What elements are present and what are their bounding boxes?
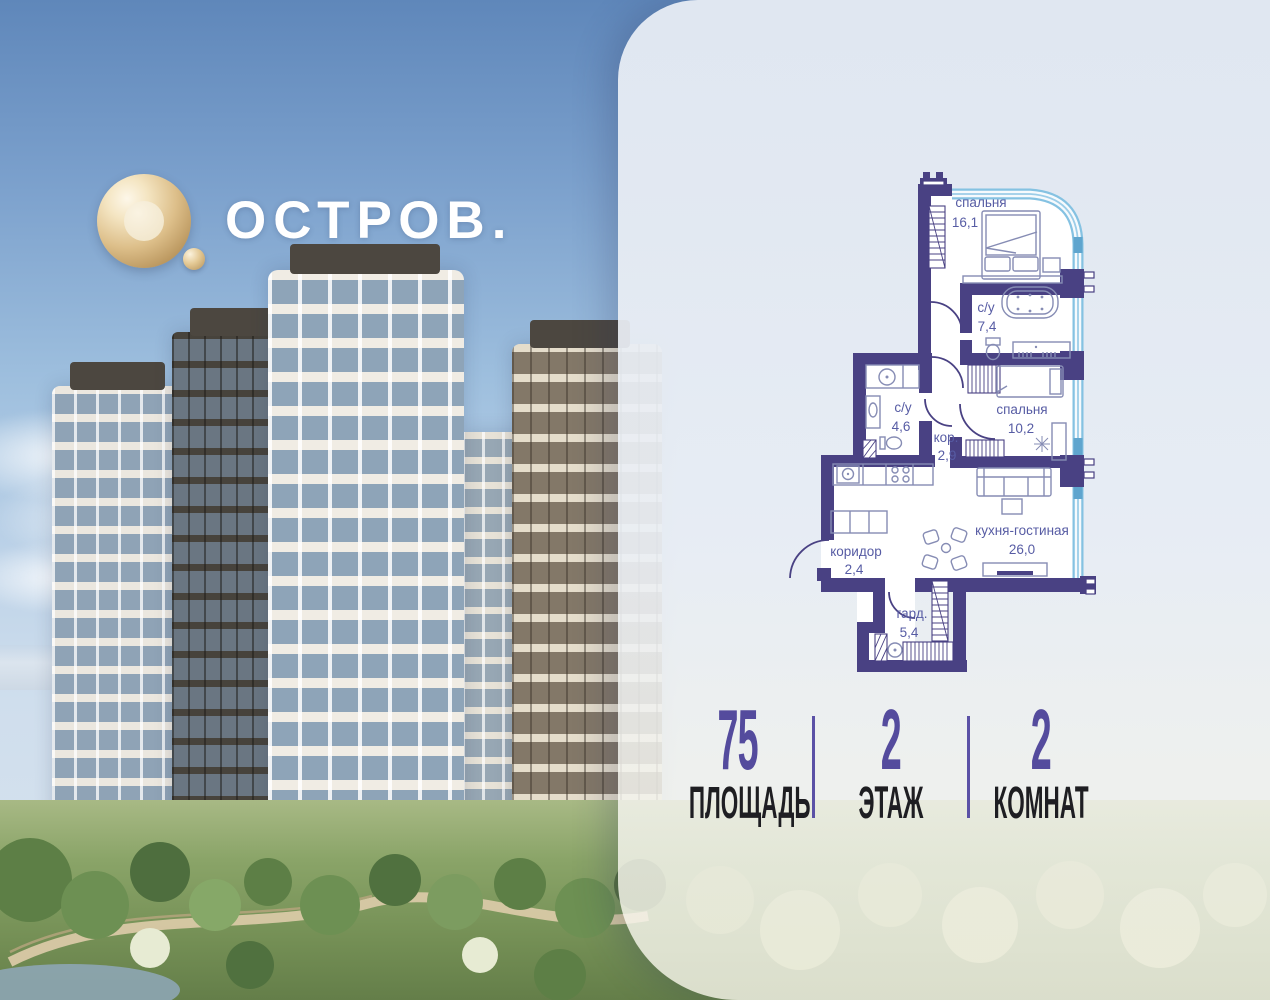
stat-rooms-value: 2	[931, 700, 1151, 782]
room-area-label: 2,9	[938, 448, 957, 463]
brand-logo-dot-icon	[183, 248, 205, 270]
room-name-label: с/у	[894, 400, 912, 415]
room-area-label: 2,4	[845, 562, 864, 577]
room-name-label: с/у	[977, 300, 995, 315]
room-name-label: спальня	[996, 402, 1047, 417]
building-roof	[530, 320, 630, 348]
listing-card: ОСТРОВ.	[0, 0, 1270, 1000]
room-area-label: 16,1	[952, 215, 978, 230]
room-area-label: 4,6	[892, 419, 911, 434]
floor-plan: спальня 16,1 с/у 7,4 с/у 4,6 кор. 2,9 сп…	[786, 164, 1108, 679]
room-name-label: кухня-гостиная	[975, 523, 1069, 538]
stat-rooms-label: КОМНАТ	[931, 781, 1151, 825]
brand-logo-icon	[97, 174, 191, 268]
room-name-label: спальня	[955, 195, 1006, 210]
room-area-label: 10,2	[1008, 421, 1034, 436]
brand-title: ОСТРОВ.	[225, 193, 513, 249]
room-name-label: гард.	[897, 606, 928, 621]
room-area-label: 7,4	[978, 319, 997, 334]
room-name-label: кор.	[934, 430, 959, 445]
room-area-label: 26,0	[1009, 542, 1035, 557]
building-tower	[268, 270, 464, 862]
room-name-label: коридор	[830, 544, 882, 559]
building-tower	[52, 386, 184, 856]
room-area-label: 5,4	[900, 625, 919, 640]
building-roof	[190, 308, 278, 336]
building-roof	[70, 362, 165, 390]
